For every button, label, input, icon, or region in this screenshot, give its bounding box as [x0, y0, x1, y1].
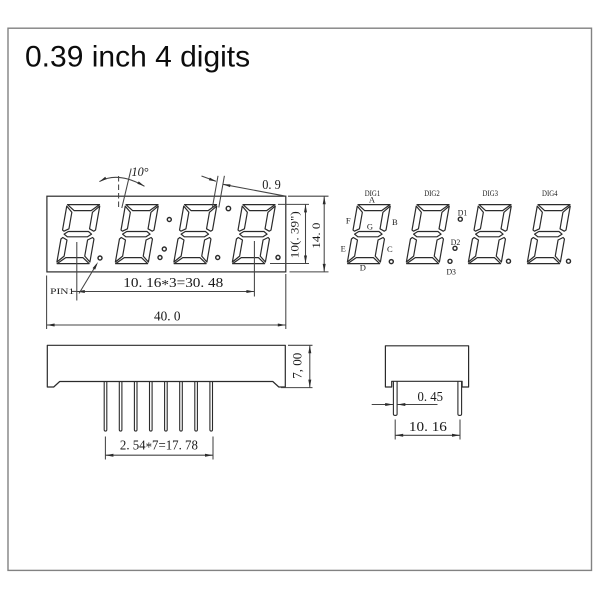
svg-text:C: C	[387, 244, 393, 254]
svg-text:7, 00: 7, 00	[290, 353, 304, 379]
svg-text:10(. 39"): 10(. 39")	[288, 211, 302, 258]
svg-text:0.39 inch 4 digits: 0.39 inch 4 digits	[25, 41, 250, 74]
svg-text:14. 0: 14. 0	[309, 223, 323, 249]
svg-text:0. 9: 0. 9	[262, 177, 281, 192]
svg-text:B: B	[392, 217, 398, 227]
svg-text:PIN1: PIN1	[50, 286, 74, 296]
svg-text:DIG4: DIG4	[542, 189, 558, 198]
svg-text:DIG2: DIG2	[424, 189, 440, 198]
svg-text:D1: D1	[458, 208, 468, 217]
svg-text:F: F	[346, 215, 351, 225]
svg-text:D: D	[360, 263, 366, 273]
svg-text:A: A	[369, 195, 376, 205]
svg-text:10. 16: 10. 16	[409, 419, 447, 434]
svg-text:DIG3: DIG3	[483, 189, 499, 198]
svg-text:40. 0: 40. 0	[154, 309, 181, 324]
svg-text:10. 16*3=30. 48: 10. 16*3=30. 48	[123, 276, 223, 293]
svg-text:G: G	[367, 222, 373, 232]
svg-text:D2: D2	[451, 238, 461, 247]
svg-text:0. 45: 0. 45	[417, 389, 443, 404]
svg-text:10°: 10°	[132, 164, 149, 179]
svg-text:D3: D3	[446, 267, 456, 276]
svg-text:E: E	[341, 243, 346, 253]
svg-text:2. 54*7=17. 78: 2. 54*7=17. 78	[120, 439, 198, 456]
